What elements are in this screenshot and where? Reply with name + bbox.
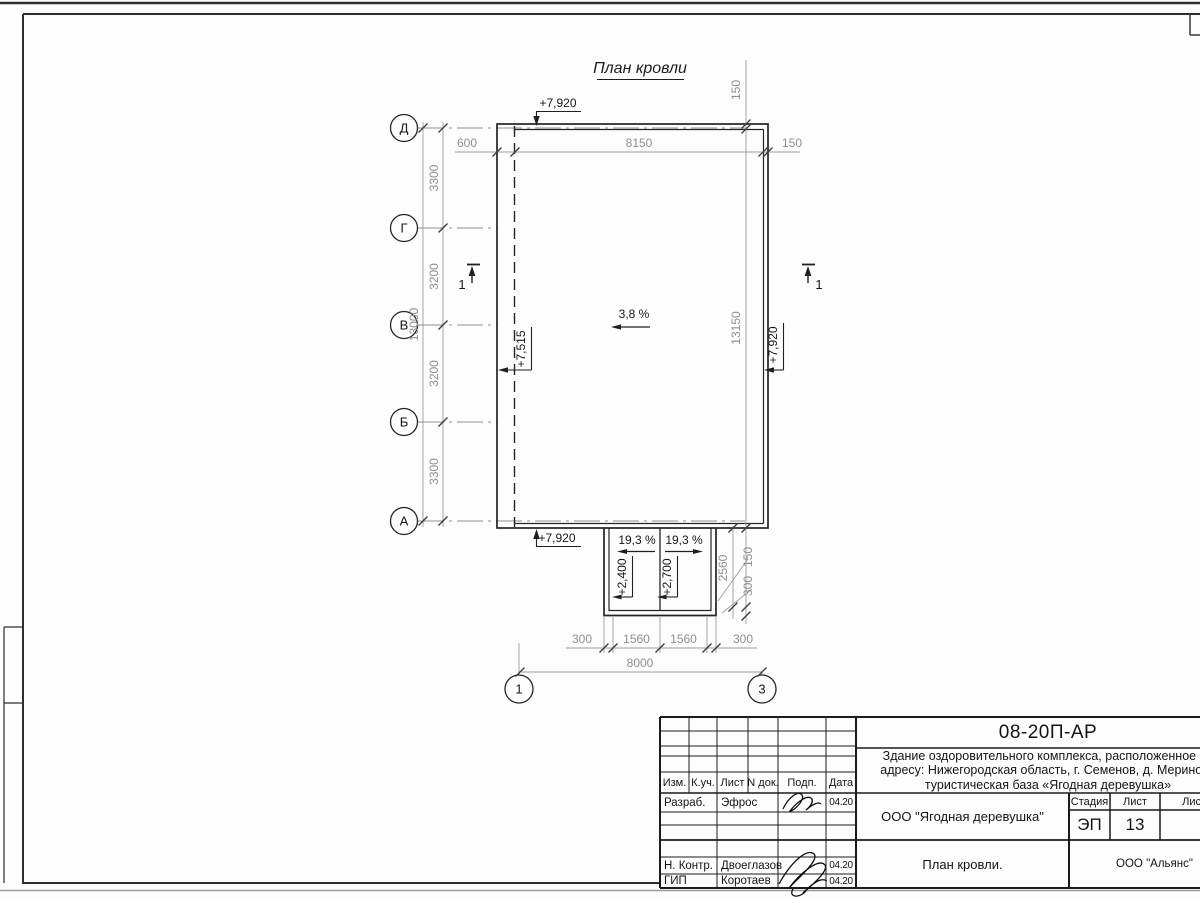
drawing-sheet: План кровли Д Г В Б А 1 3 — [0, 0, 1200, 900]
axis-label-a: А — [400, 514, 409, 529]
row-role-nkontr: Н. Контр. — [660, 857, 717, 874]
project-description-line2: адресу: Нижегородская область, г. Семено… — [880, 763, 1200, 778]
row-date-nkontr: 04.20 — [826, 857, 856, 874]
elev-canopy-left-text: +2,400 — [615, 558, 629, 595]
dim-right-150-bottom: 150 — [741, 547, 755, 567]
slope-canopy-right: 19,3 % — [665, 533, 703, 554]
drawing-title: План кровли — [593, 60, 687, 80]
axis-lines — [418, 128, 745, 521]
project-code: 08-20П-АР — [856, 717, 1200, 748]
dim-left-3200a: 3200 — [427, 263, 441, 290]
col-header-kuch: К.уч. — [689, 772, 717, 793]
axis-label-1: 1 — [515, 682, 522, 697]
elevation-mark-left: +7,515 — [498, 327, 532, 373]
dim-left-3300a: 3300 — [427, 164, 441, 191]
elev-left-text: +7,515 — [514, 330, 528, 367]
elev-canopy-right-text: +2,700 — [660, 558, 674, 595]
slope-marks: 3,8 % 19,3 % 19,3 % — [611, 307, 703, 554]
section-right-label: 1 — [815, 277, 822, 292]
elev-right-text: +7,920 — [766, 326, 780, 363]
col-header-list: Лист — [717, 772, 748, 793]
section-left-label: 1 — [458, 277, 465, 292]
project-description-line3: туристическая база «Ягодная деревушка» — [925, 778, 1171, 793]
row-date-gip: 04.20 — [826, 874, 856, 888]
elev-bottom-text: +7,920 — [538, 531, 575, 545]
slope-canopy-left-text: 19,3 % — [618, 533, 656, 547]
row-name-dvoeglazov: Двоеглазов — [717, 857, 778, 874]
org-name: ООО "Ягодная деревушка" — [856, 793, 1069, 840]
company-name: ООО "Альянс" — [1069, 840, 1200, 888]
slope-canopy-left: 19,3 % — [617, 533, 656, 554]
col-header-data: Дата — [826, 772, 856, 793]
sheets-label: Листов — [1160, 793, 1200, 810]
sheet-value: 13 — [1110, 810, 1160, 840]
dim-bottom-300a: 300 — [572, 632, 592, 646]
dim-bottom-1560a: 1560 — [623, 632, 650, 646]
axis-markers-bottom: 1 3 — [505, 643, 776, 703]
dim-right-150-top: 150 — [729, 80, 743, 100]
elevation-mark-top: +7,920 — [533, 96, 581, 126]
signature-icon — [783, 793, 821, 811]
col-header-izm: Изм. — [660, 772, 689, 793]
row-date-razrab: 04.20 — [826, 793, 856, 812]
elevation-mark-bottom: +7,920 — [533, 529, 581, 547]
project-description-line1: Здание оздоровительного комплекса, распо… — [883, 749, 1200, 764]
dim-bottom-1560b: 1560 — [670, 632, 697, 646]
axis-label-b: Б — [400, 415, 409, 430]
section-mark-right: 1 — [802, 265, 823, 293]
slope-main: 3,8 % — [611, 307, 650, 330]
col-header-podp: Подп. — [778, 772, 826, 793]
row-name-efros: Эфрос — [717, 793, 778, 812]
dimension-ticks — [419, 120, 773, 677]
slope-canopy-right-text: 19,3 % — [665, 533, 703, 547]
row-role-gip: ГИП — [660, 874, 717, 888]
dim-top-600: 600 — [457, 136, 477, 150]
elevation-mark-canopy-right: +2,700 — [657, 556, 678, 599]
row-role-razrab: Разраб. — [660, 793, 717, 812]
dim-left-3300b: 3300 — [427, 458, 441, 485]
drawing-title-text: План кровли — [593, 60, 687, 77]
stage-value: ЭП — [1069, 810, 1110, 840]
dim-bottom-300b: 300 — [733, 632, 753, 646]
dim-top-8150: 8150 — [626, 136, 653, 150]
section-mark-left: 1 — [458, 265, 480, 293]
roof-outline — [497, 124, 768, 528]
elev-top-text: +7,920 — [539, 96, 576, 110]
dim-left-13000: 13000 — [407, 307, 421, 341]
axis-label-g: Г — [400, 221, 407, 236]
dim-right-2560: 2560 — [716, 554, 730, 581]
project-description: Здание оздоровительного комплекса, распо… — [856, 748, 1200, 793]
row-name-korotaev: Коротаев — [717, 874, 778, 888]
col-header-ndok: N док. — [748, 772, 778, 793]
elevation-mark-right: +7,920 — [764, 323, 784, 373]
axis-label-3: 3 — [758, 682, 765, 697]
slope-main-text: 3,8 % — [619, 307, 650, 321]
dim-left-3200b: 3200 — [427, 360, 441, 387]
dim-bottom-8000: 8000 — [627, 656, 654, 670]
signatures — [779, 793, 827, 896]
dim-top-150: 150 — [782, 136, 802, 150]
axis-label-d: Д — [400, 121, 409, 136]
dim-right-300: 300 — [741, 576, 755, 596]
stage-label: Стадия — [1069, 793, 1110, 810]
elevation-mark-canopy-left: +2,400 — [612, 556, 633, 599]
dim-right-13150: 13150 — [729, 311, 743, 345]
sheet-label: Лист — [1110, 793, 1160, 810]
doc-name: План кровли. — [856, 840, 1069, 888]
